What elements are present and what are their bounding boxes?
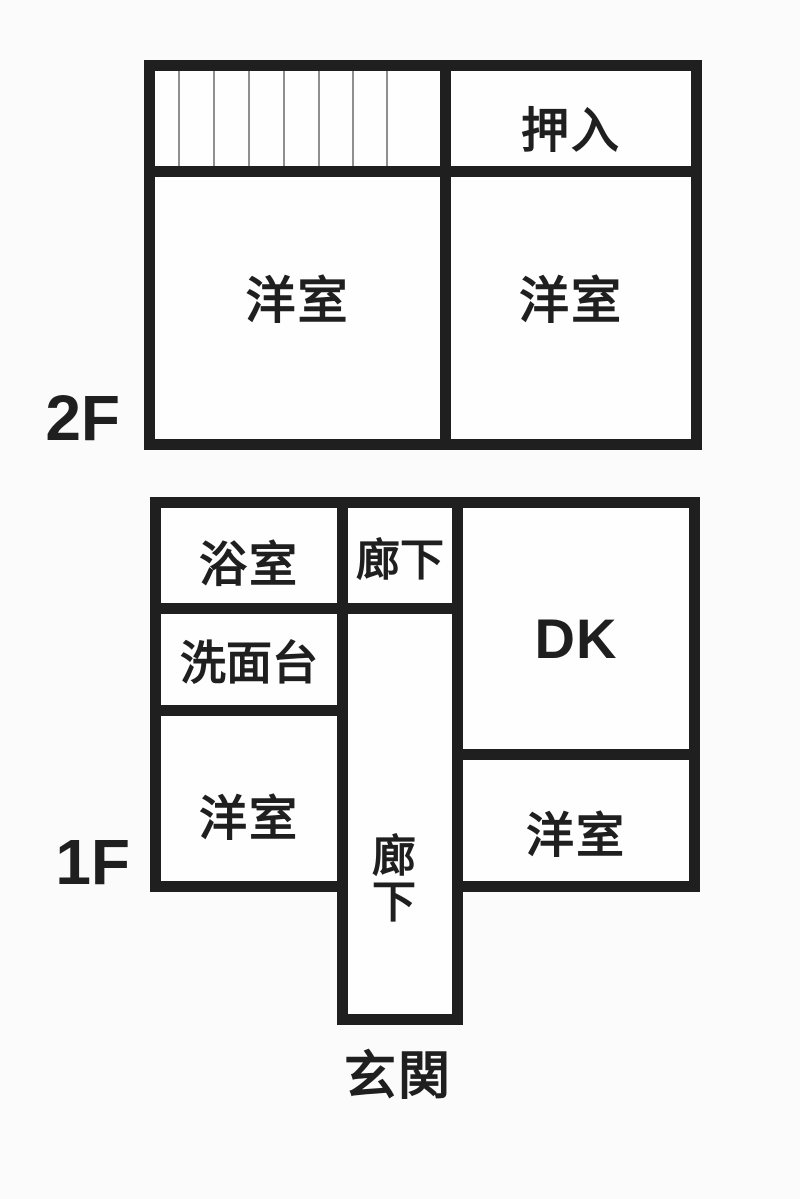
room-western-right-2f: 洋室: [440, 166, 702, 450]
stair-line: [248, 71, 250, 166]
room-label-western-left-2f: 洋室: [246, 261, 350, 333]
room-western-left-2f: 洋室: [144, 166, 451, 450]
entrance-label: 玄関: [298, 1050, 498, 1104]
stair-line: [352, 71, 354, 166]
room-western-right-1f: 洋室: [452, 749, 700, 892]
room-label-bathroom: 浴室: [199, 525, 299, 595]
room-label-washstand: 洗面台: [180, 627, 318, 693]
room-washstand-1f: 洗面台: [150, 603, 348, 716]
room-label-hallway-top: 廊下: [356, 524, 444, 588]
room-closet-2f: 押入: [440, 60, 702, 177]
room-label-western-right-1f: 洋室: [526, 796, 626, 866]
floor-label-1f: 1F: [28, 830, 130, 894]
stair-line: [386, 71, 388, 166]
room-bathroom-1f: 浴室: [150, 497, 348, 614]
room-hallway-top-1f: 廊下: [337, 497, 463, 614]
room-hallway-vertical-1f: 廊下: [337, 603, 463, 1025]
room-label-dk: DK: [535, 606, 618, 671]
room-label-closet-2f: 押入: [521, 91, 621, 161]
room-western-left-1f: 洋室: [150, 705, 348, 892]
room-label-western-left-1f: 洋室: [199, 779, 299, 849]
stair-line: [283, 71, 285, 166]
room-label-hallway-vertical: 廊下: [371, 834, 417, 926]
stair-line: [213, 71, 215, 166]
room-dk-1f: DK: [452, 497, 700, 760]
floor-label-2f: 2F: [18, 386, 120, 450]
stair-line: [318, 71, 320, 166]
room-label-western-right-2f: 洋室: [519, 261, 623, 333]
stairs-area: [144, 60, 451, 177]
stair-line: [178, 71, 180, 166]
